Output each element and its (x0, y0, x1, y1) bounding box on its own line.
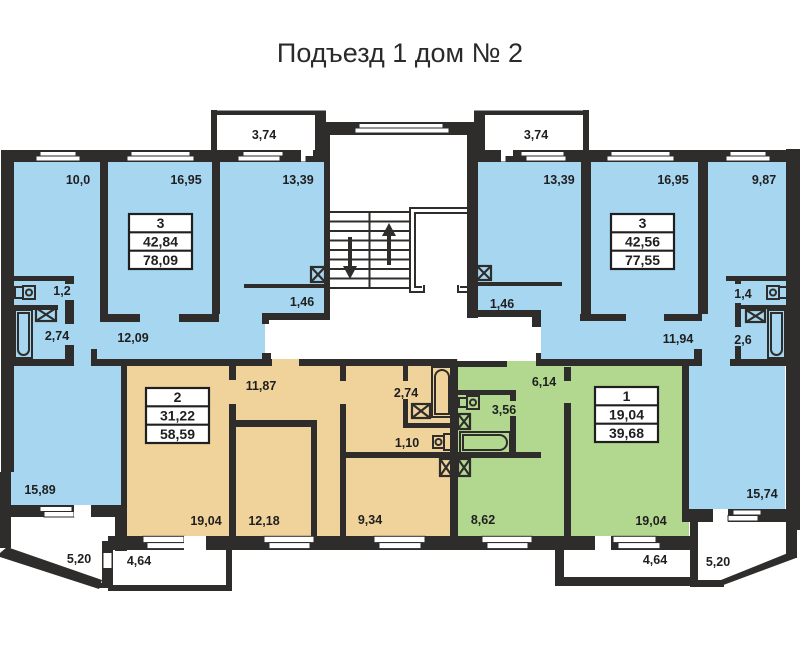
svg-text:5,20: 5,20 (67, 552, 91, 566)
svg-text:12,18: 12,18 (248, 514, 279, 528)
svg-text:4,64: 4,64 (643, 553, 667, 567)
svg-text:Подъезд 1 дом № 2: Подъезд 1 дом № 2 (277, 38, 523, 68)
svg-text:9,87: 9,87 (752, 173, 776, 187)
svg-text:1,2: 1,2 (53, 284, 70, 298)
svg-text:42,84: 42,84 (143, 234, 178, 250)
svg-text:77,55: 77,55 (625, 252, 660, 268)
svg-text:11,94: 11,94 (663, 332, 694, 346)
svg-text:15,89: 15,89 (24, 483, 55, 497)
svg-text:39,68: 39,68 (609, 425, 644, 441)
svg-text:10,0: 10,0 (66, 173, 90, 187)
svg-text:2,74: 2,74 (45, 329, 69, 343)
svg-text:16,95: 16,95 (170, 173, 201, 187)
svg-text:1,46: 1,46 (490, 297, 514, 311)
svg-text:1,46: 1,46 (290, 295, 314, 309)
svg-text:2: 2 (174, 389, 182, 405)
svg-text:19,04: 19,04 (609, 407, 644, 423)
svg-text:5,20: 5,20 (706, 555, 730, 569)
svg-text:3: 3 (639, 215, 647, 231)
svg-text:3,74: 3,74 (252, 128, 276, 142)
svg-text:8,62: 8,62 (471, 513, 495, 527)
svg-text:11,87: 11,87 (246, 379, 277, 393)
svg-text:4,64: 4,64 (127, 554, 151, 568)
svg-text:13,39: 13,39 (543, 173, 574, 187)
svg-text:78,09: 78,09 (143, 252, 178, 268)
svg-text:3: 3 (157, 215, 165, 231)
svg-text:1: 1 (623, 388, 631, 404)
svg-text:9,34: 9,34 (358, 513, 382, 527)
svg-text:1,4: 1,4 (734, 287, 751, 301)
svg-text:2,6: 2,6 (734, 333, 751, 347)
svg-text:15,74: 15,74 (746, 487, 777, 501)
svg-text:16,95: 16,95 (657, 173, 688, 187)
svg-text:6,14: 6,14 (532, 375, 556, 389)
svg-text:58,59: 58,59 (160, 426, 195, 442)
svg-text:3,56: 3,56 (492, 403, 516, 417)
svg-text:19,04: 19,04 (190, 514, 221, 528)
svg-text:19,04: 19,04 (635, 514, 666, 528)
svg-text:42,56: 42,56 (625, 234, 660, 250)
svg-text:12,09: 12,09 (117, 331, 148, 345)
svg-text:13,39: 13,39 (282, 173, 313, 187)
svg-text:1,10: 1,10 (395, 436, 419, 450)
svg-text:31,22: 31,22 (160, 408, 195, 424)
svg-text:2,74: 2,74 (394, 386, 418, 400)
svg-text:3,74: 3,74 (524, 128, 548, 142)
